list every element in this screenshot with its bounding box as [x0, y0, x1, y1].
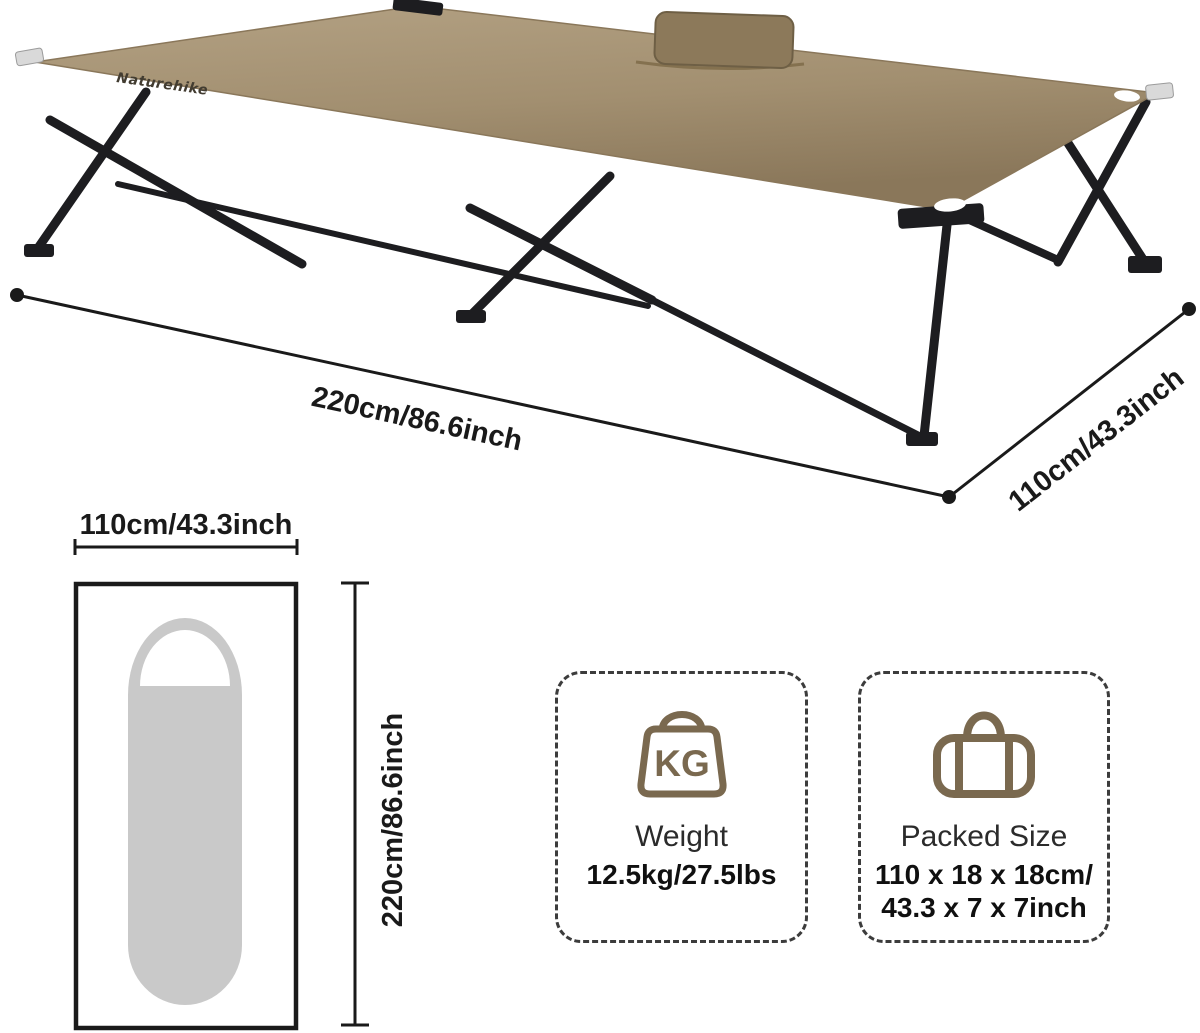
weight-value: 12.5kg/27.5lbs	[587, 858, 777, 891]
cot-foot	[906, 432, 938, 446]
top-view-diagram: 110cm/43.3inch 220cm/86.6inch	[75, 509, 409, 1028]
end-cap-right	[1145, 83, 1173, 101]
front-right-leg	[924, 216, 948, 436]
cot-foot	[24, 244, 54, 257]
left-x-leg	[50, 120, 302, 264]
right-x-leg	[1066, 140, 1146, 264]
packed-size-line1: 110 x 18 x 18cm/	[875, 858, 1093, 891]
weight-title: Weight	[635, 820, 728, 853]
cot-foot	[456, 310, 486, 323]
packed-size-line2: 43.3 x 7 x 7inch	[875, 891, 1093, 924]
cot-dimension-annotations: 220cm/86.6inch 110cm/43.3inch	[10, 288, 1196, 518]
cot-fabric-surface	[35, 6, 1157, 210]
side-brace-right	[652, 300, 920, 436]
top-view-length-dimension	[341, 583, 369, 1025]
camping-cot: Naturehike	[15, 0, 1174, 446]
sleeping-bag-silhouette	[128, 618, 242, 1005]
cot-pillow	[636, 12, 804, 69]
dim-endpoint-dot	[1182, 302, 1196, 316]
length-dimension-label: 220cm/86.6inch	[309, 381, 525, 458]
top-view-width-dimension	[75, 539, 297, 555]
kg-icon-label: KG	[654, 743, 710, 784]
kg-weight-bag-icon: KG	[616, 694, 748, 816]
product-infographic: Naturehike 220cm/86.6inch 110cm/43.3inch…	[0, 0, 1200, 1033]
duffel-body	[937, 738, 1031, 794]
duffel-bag-icon	[918, 694, 1050, 816]
packed-size-title: Packed Size	[901, 820, 1068, 853]
weight-card: KG Weight 12.5kg/27.5lbs	[555, 671, 808, 943]
packed-size-card: Packed Size 110 x 18 x 18cm/ 43.3 x 7 x …	[858, 671, 1110, 943]
pillow	[654, 12, 794, 69]
top-view-width-label: 110cm/43.3inch	[80, 509, 293, 541]
packed-size-value: 110 x 18 x 18cm/ 43.3 x 7 x 7inch	[875, 858, 1093, 924]
length-dimension-line	[17, 295, 949, 497]
cot-foot	[1128, 256, 1162, 273]
width-dimension-label: 110cm/43.3inch	[1003, 362, 1190, 518]
top-view-length-label: 220cm/86.6inch	[377, 713, 409, 927]
